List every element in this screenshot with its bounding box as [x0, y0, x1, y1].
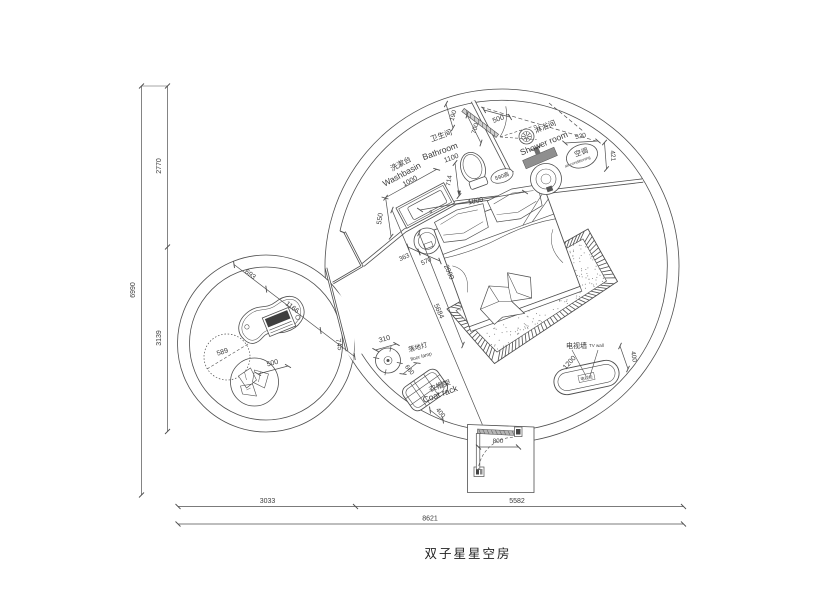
svg-text:双子星星空房: 双子星星空房 [424, 546, 511, 561]
svg-text:8621: 8621 [422, 516, 438, 523]
svg-text:6990: 6990 [130, 282, 137, 298]
svg-text:2770: 2770 [156, 158, 163, 174]
svg-text:3139: 3139 [156, 330, 163, 346]
svg-text:5582: 5582 [509, 498, 525, 505]
svg-text:800: 800 [493, 438, 504, 445]
svg-text:421: 421 [609, 150, 617, 162]
svg-text:3033: 3033 [260, 498, 276, 505]
svg-text:电视墙: 电视墙 [566, 341, 587, 350]
svg-text:TV wall: TV wall [589, 343, 604, 348]
